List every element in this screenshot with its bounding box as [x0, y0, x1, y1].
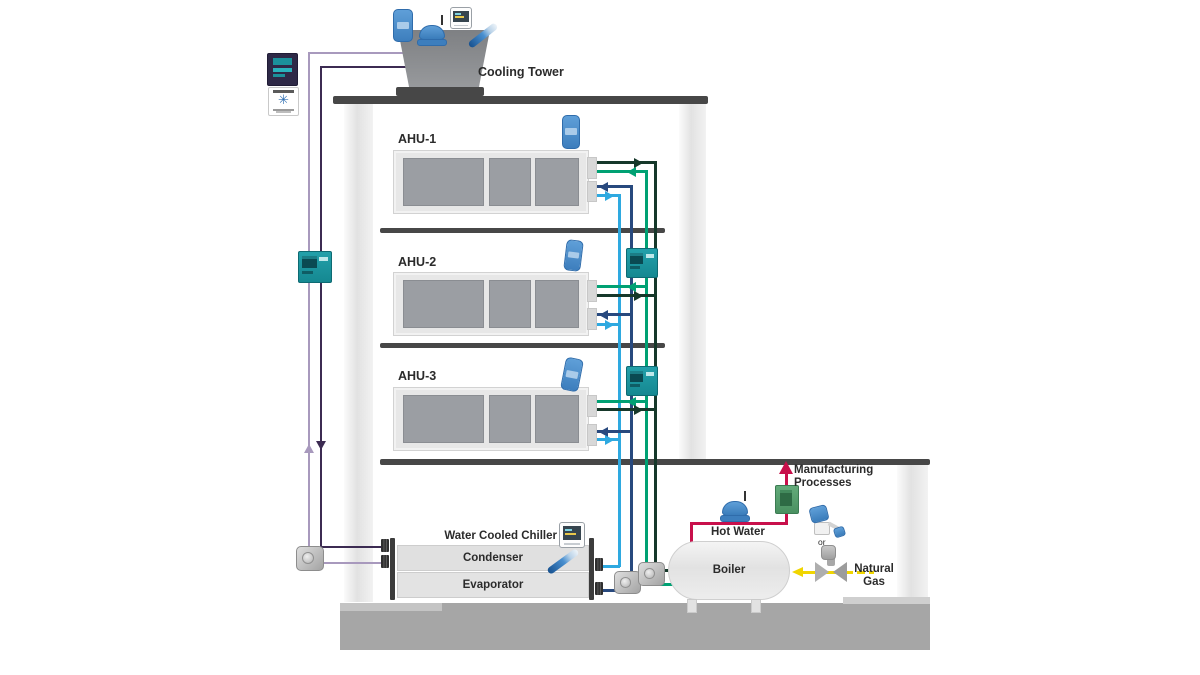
ahu-1-sensor-icon — [562, 115, 580, 149]
floor-slab-3 — [380, 343, 665, 348]
chilled-water-pump-icon — [614, 571, 641, 594]
wireless-pump-icon — [417, 20, 447, 46]
flow-arrow-right — [605, 191, 614, 201]
hot-water-wireless-pump-icon — [720, 496, 750, 522]
boiler-label: Boiler — [669, 564, 789, 577]
ahu-1-pipe-stub — [587, 181, 597, 202]
ahu-2-label: AHU-2 — [398, 256, 436, 270]
flange-icon — [595, 582, 603, 595]
condenser-supply-pipe-bottom — [320, 546, 386, 548]
ahu-panel — [535, 280, 579, 328]
process-controller-icon — [775, 485, 799, 514]
flange-icon — [381, 539, 389, 552]
chilled-return-riser — [618, 194, 621, 567]
foundation-ledge-left — [340, 603, 442, 611]
chiller-display-icon — [559, 522, 585, 548]
ahu1-hot-return-branch — [596, 161, 657, 164]
boiler-leg — [751, 599, 761, 613]
ahu-panel — [489, 158, 531, 206]
flow-arrow-up — [779, 461, 793, 474]
ahu-2-pipe-stub — [587, 280, 597, 302]
hvac-system-diagram: Cooling Tower ✳ AHU-1 AHU-2 AHU-3 Water … — [0, 0, 1200, 675]
right-column-lower — [897, 465, 928, 603]
building-controller-icon — [267, 53, 298, 86]
ahu-1-pipe-stub — [587, 157, 597, 179]
flow-arrow-left — [792, 567, 803, 577]
chiller-right-header — [589, 538, 594, 600]
chilled-return-to-evaporator — [601, 565, 620, 568]
condenser-water-pump-icon — [296, 546, 324, 571]
condenser-supply-pipe-vertical — [320, 66, 322, 548]
ahu-1 — [393, 150, 589, 214]
ahu-2-sensor-icon — [563, 239, 584, 272]
software-logo-card-icon: ✳ — [268, 87, 299, 116]
roof-slab — [333, 96, 708, 104]
flow-arrow-right — [605, 320, 614, 330]
gas-transmitter-icon — [808, 506, 842, 538]
ahu-2 — [393, 272, 589, 336]
ahu2-hot-return-branch — [596, 294, 657, 297]
evaporator-section: Evaporator — [397, 572, 589, 598]
hot-water-pipe-run — [690, 522, 788, 525]
wireless-sensor-icon — [393, 9, 413, 42]
flow-arrow-right — [634, 291, 643, 301]
left-column — [344, 104, 373, 602]
ahu1-hot-supply-branch — [596, 170, 648, 173]
ahu2-hot-supply-branch — [596, 285, 648, 288]
ahu-panel — [489, 395, 531, 443]
ahu3-hot-return-branch — [596, 408, 657, 411]
ahu-3-pipe-stub — [587, 395, 597, 417]
gas-valve-icon — [815, 560, 847, 584]
natural-gas-label: Natural Gas — [849, 563, 899, 588]
hot-water-label: Hot Water — [711, 526, 765, 539]
water-cooled-chiller-label: Water Cooled Chiller — [395, 530, 557, 543]
hot-water-pipe-riser — [690, 524, 693, 542]
flow-arrow-right — [605, 435, 614, 445]
hot-water-pump-icon — [638, 562, 665, 586]
riser-controller-icon — [626, 248, 658, 278]
ahu-panel — [535, 158, 579, 206]
flow-arrow-left — [599, 310, 608, 320]
ahu-panel — [535, 395, 579, 443]
ahu-2-pipe-stub — [587, 308, 597, 330]
or-label: or — [818, 538, 826, 547]
foundation-ledge-right — [843, 597, 930, 604]
ahu-panel — [403, 280, 484, 328]
ahu-3-label: AHU-3 — [398, 370, 436, 384]
condenser-return-pipe-vertical — [308, 52, 310, 566]
evaporator-label: Evaporator — [398, 579, 588, 592]
cooling-tower-label: Cooling Tower — [478, 66, 564, 80]
flow-arrow-left — [627, 167, 636, 177]
manufacturing-processes-label: Manufacturing Processes — [794, 464, 886, 489]
gateway-display-icon — [450, 7, 472, 29]
right-column-upper — [679, 104, 706, 462]
ahu-3 — [393, 387, 589, 451]
ahu-1-label: AHU-1 — [398, 133, 436, 147]
boiler: Boiler — [668, 541, 790, 600]
flow-arrow-up — [304, 444, 314, 453]
flow-arrow-down — [316, 441, 326, 450]
ahu-panel — [403, 158, 484, 206]
boiler-leg — [687, 599, 697, 613]
flange-icon — [595, 558, 603, 571]
riser-controller-icon — [298, 251, 332, 283]
chiller-left-header — [390, 538, 395, 600]
ahu-panel — [403, 395, 484, 443]
cooling-tower-base — [396, 87, 484, 96]
ahu3-hot-supply-branch — [596, 400, 648, 403]
riser-controller-icon — [626, 366, 658, 396]
ahu-3-pipe-stub — [587, 424, 597, 446]
flow-arrow-right — [634, 405, 643, 415]
flange-icon — [381, 555, 389, 568]
ahu-panel — [489, 280, 531, 328]
floor-slab-2 — [380, 228, 665, 233]
